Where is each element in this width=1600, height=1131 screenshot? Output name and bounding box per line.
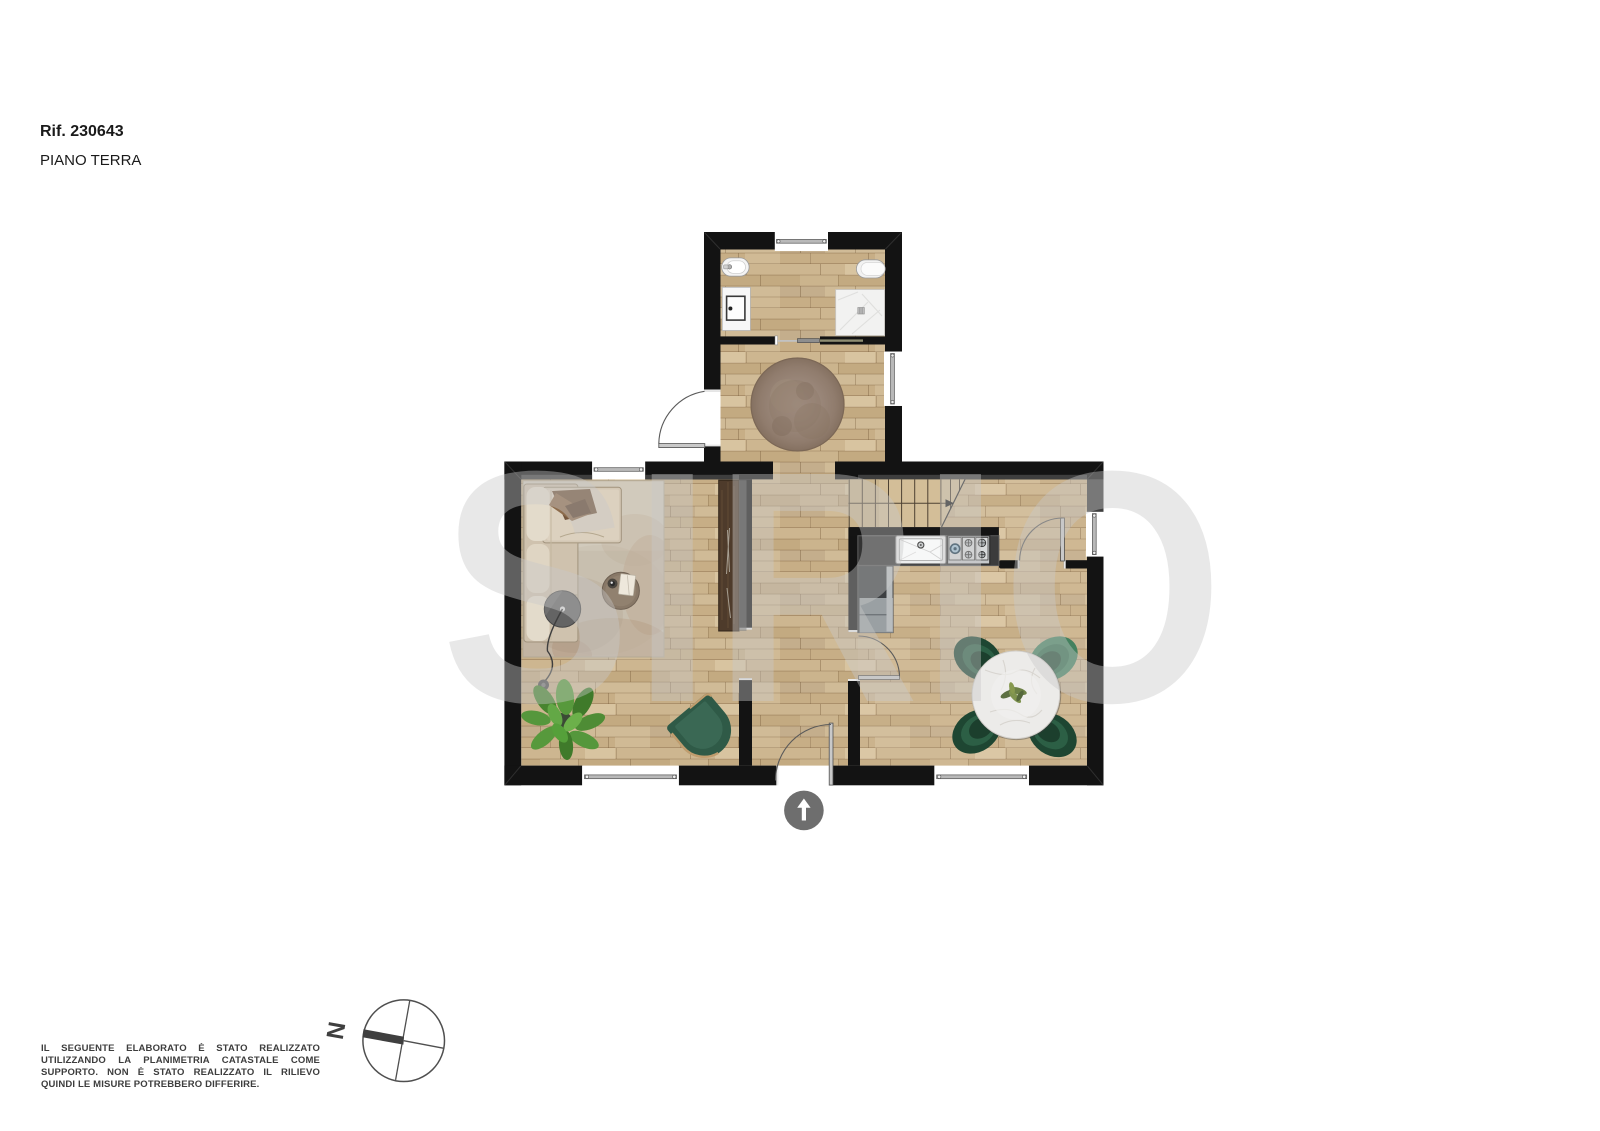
svg-text:N: N bbox=[322, 1020, 352, 1042]
svg-text:SIRIO: SIRIO bbox=[441, 403, 1225, 771]
